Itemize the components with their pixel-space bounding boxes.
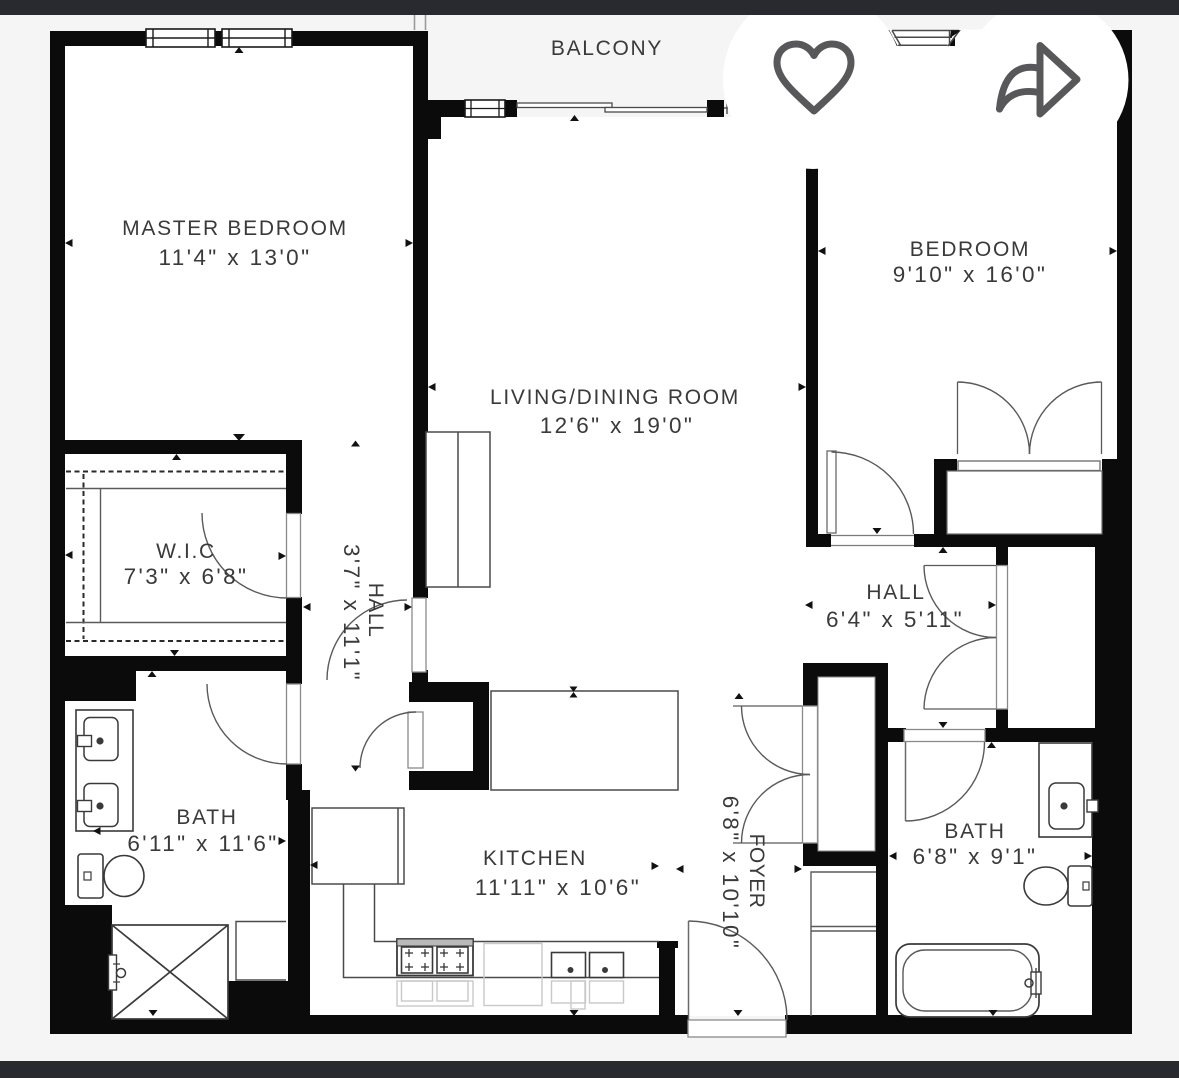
svg-text:W.I.C: W.I.C (156, 540, 216, 563)
svg-text:BALCONY: BALCONY (551, 37, 663, 60)
svg-text:6'8" x 9'1": 6'8" x 9'1" (913, 844, 1038, 869)
svg-text:11'11" x 10'6": 11'11" x 10'6" (475, 875, 641, 900)
svg-text:9'10" x 16'0": 9'10" x 16'0" (893, 262, 1048, 287)
svg-text:11'4" x 13'0": 11'4" x 13'0" (159, 245, 312, 270)
svg-text:BATH: BATH (944, 820, 1005, 843)
svg-text:HALL: HALL (866, 581, 925, 604)
svg-text:6'4" x 5'11": 6'4" x 5'11" (826, 607, 964, 632)
svg-text:6'11" x 11'6": 6'11" x 11'6" (127, 831, 278, 856)
svg-text:MASTER BEDROOM: MASTER BEDROOM (122, 217, 348, 240)
svg-text:6'8" x 10'10": 6'8" x 10'10" (718, 796, 743, 951)
svg-text:BEDROOM: BEDROOM (910, 238, 1030, 261)
svg-text:FOYER: FOYER (745, 834, 768, 909)
svg-text:7'3" x 6'8": 7'3" x 6'8" (124, 564, 249, 589)
svg-text:KITCHEN: KITCHEN (483, 847, 587, 870)
svg-text:12'6" x 19'0": 12'6" x 19'0" (540, 413, 695, 438)
svg-text:HALL: HALL (364, 583, 387, 638)
svg-text:LIVING/DINING ROOM: LIVING/DINING ROOM (490, 386, 740, 409)
svg-text:3'7" x 11'1": 3'7" x 11'1" (339, 544, 364, 682)
svg-text:BATH: BATH (176, 806, 237, 829)
